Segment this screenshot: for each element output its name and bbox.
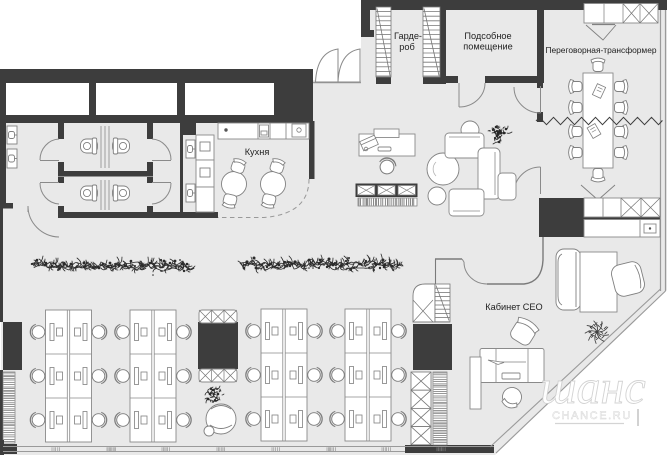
svg-text:Переговорная-трансформер: Переговорная-трансформер bbox=[545, 45, 656, 55]
svg-text:шанс: шанс bbox=[540, 361, 645, 414]
svg-text:Кабинет CEO: Кабинет CEO bbox=[485, 302, 542, 312]
svg-text:Подсобное: Подсобное bbox=[464, 31, 511, 41]
svg-text:помещение: помещение bbox=[463, 42, 512, 52]
svg-text:Гарде-: Гарде- bbox=[394, 31, 422, 41]
svg-text:Кухня: Кухня bbox=[245, 147, 270, 157]
svg-text:CHANCE.RU: CHANCE.RU bbox=[552, 410, 632, 422]
svg-text:роб: роб bbox=[399, 42, 414, 52]
